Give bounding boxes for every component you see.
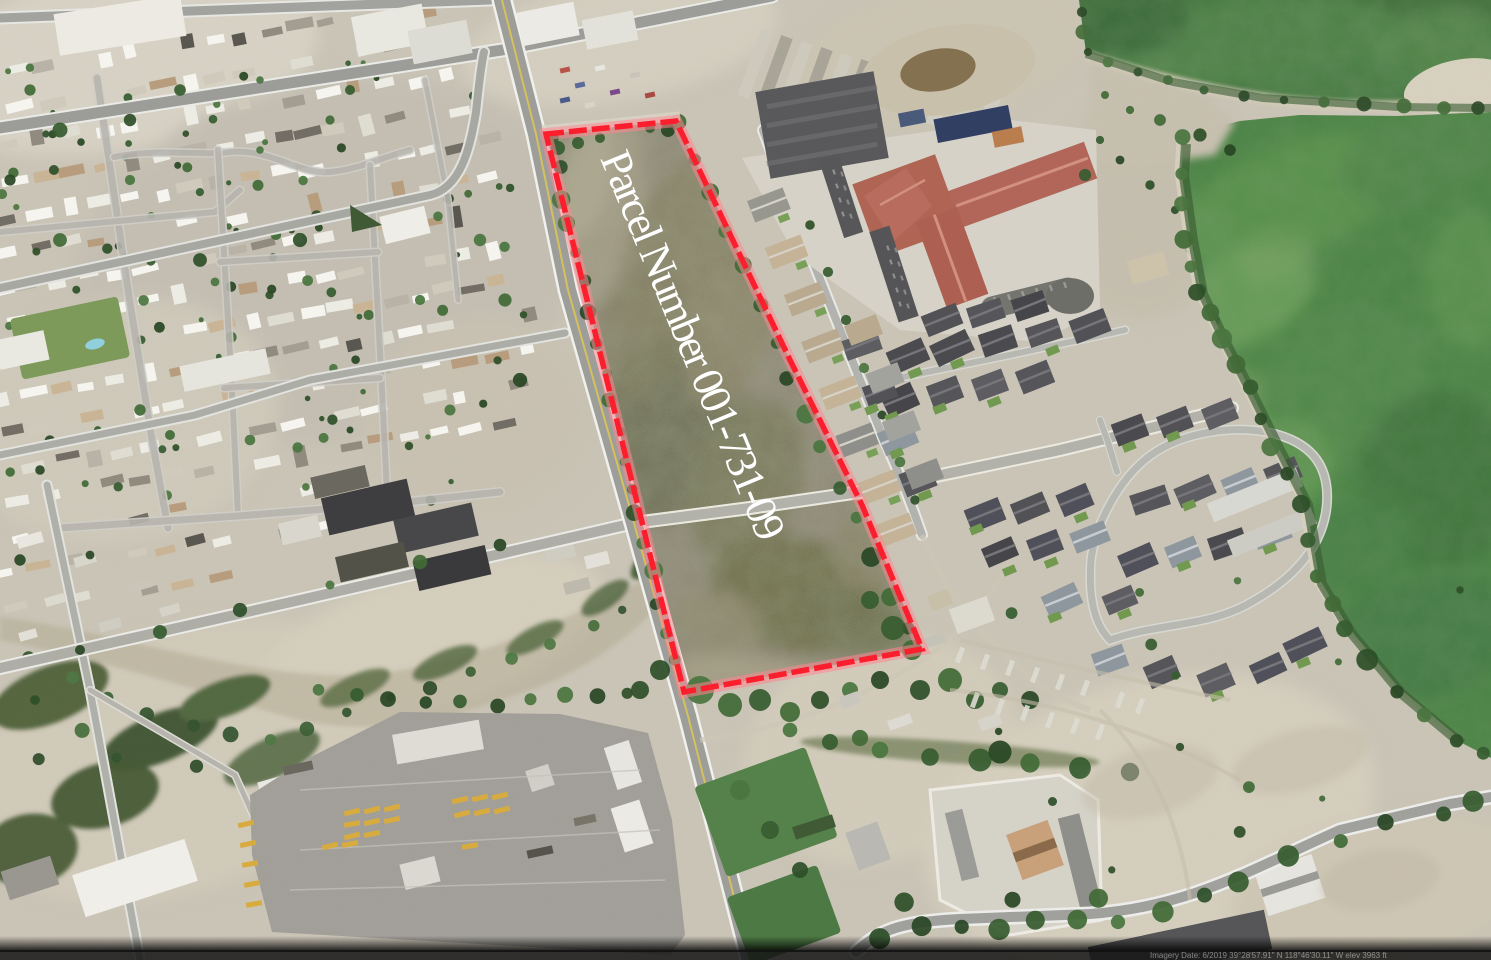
svg-text:Imagery Date: 6/2019 39°28'5: Imagery Date: 6/2019 39°28'57.91" N 118°…	[1150, 951, 1388, 960]
